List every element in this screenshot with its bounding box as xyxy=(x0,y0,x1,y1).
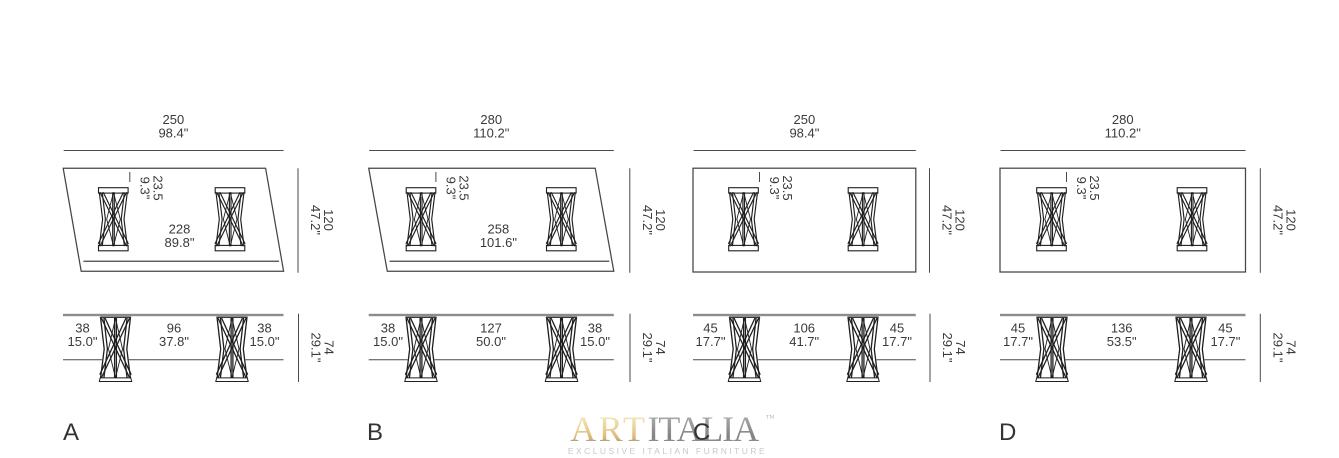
svg-text:15.0": 15.0" xyxy=(373,334,403,349)
svg-text:9.3": 9.3" xyxy=(767,177,782,200)
svg-text:101.6": 101.6" xyxy=(480,235,518,250)
svg-text:15.0": 15.0" xyxy=(580,334,610,349)
svg-text:17.7": 17.7" xyxy=(1210,334,1240,349)
svg-text:50.0": 50.0" xyxy=(476,334,506,349)
svg-text:41.7": 41.7" xyxy=(789,334,819,349)
svg-text:15.0": 15.0" xyxy=(68,334,98,349)
svg-text:98.4": 98.4" xyxy=(789,125,819,140)
svg-text:37.8": 37.8" xyxy=(159,334,189,349)
svg-text:29.1": 29.1" xyxy=(309,333,324,363)
svg-text:ART: ART xyxy=(570,409,647,449)
svg-text:17.7": 17.7" xyxy=(882,334,912,349)
svg-text:17.7": 17.7" xyxy=(696,334,726,349)
svg-text:53.5": 53.5" xyxy=(1107,334,1137,349)
svg-text:29.1": 29.1" xyxy=(940,333,955,363)
svg-text:A: A xyxy=(63,419,79,446)
svg-text:15.0": 15.0" xyxy=(250,334,280,349)
svg-text:C: C xyxy=(693,419,710,446)
svg-text:47.2": 47.2" xyxy=(1270,205,1285,235)
svg-text:110.2": 110.2" xyxy=(1105,125,1142,140)
svg-text:TM: TM xyxy=(766,415,774,421)
svg-text:EXCLUSIVE ITALIAN FURNITURE: EXCLUSIVE ITALIAN FURNITURE xyxy=(568,446,767,456)
svg-text:47.2": 47.2" xyxy=(640,205,655,235)
svg-text:B: B xyxy=(367,419,383,446)
svg-text:47.2": 47.2" xyxy=(940,205,955,235)
svg-text:17.7": 17.7" xyxy=(1003,334,1033,349)
svg-text:29.1": 29.1" xyxy=(640,333,655,363)
svg-text:D: D xyxy=(999,419,1016,446)
svg-text:29.1": 29.1" xyxy=(1270,333,1285,363)
svg-text:98.4": 98.4" xyxy=(158,125,188,140)
svg-text:47.2": 47.2" xyxy=(308,205,323,235)
svg-text:9.3": 9.3" xyxy=(138,177,153,200)
svg-text:9.3": 9.3" xyxy=(1074,177,1089,200)
svg-text:89.8": 89.8" xyxy=(165,235,195,250)
svg-text:110.2": 110.2" xyxy=(473,125,510,140)
svg-text:9.3": 9.3" xyxy=(444,177,459,200)
